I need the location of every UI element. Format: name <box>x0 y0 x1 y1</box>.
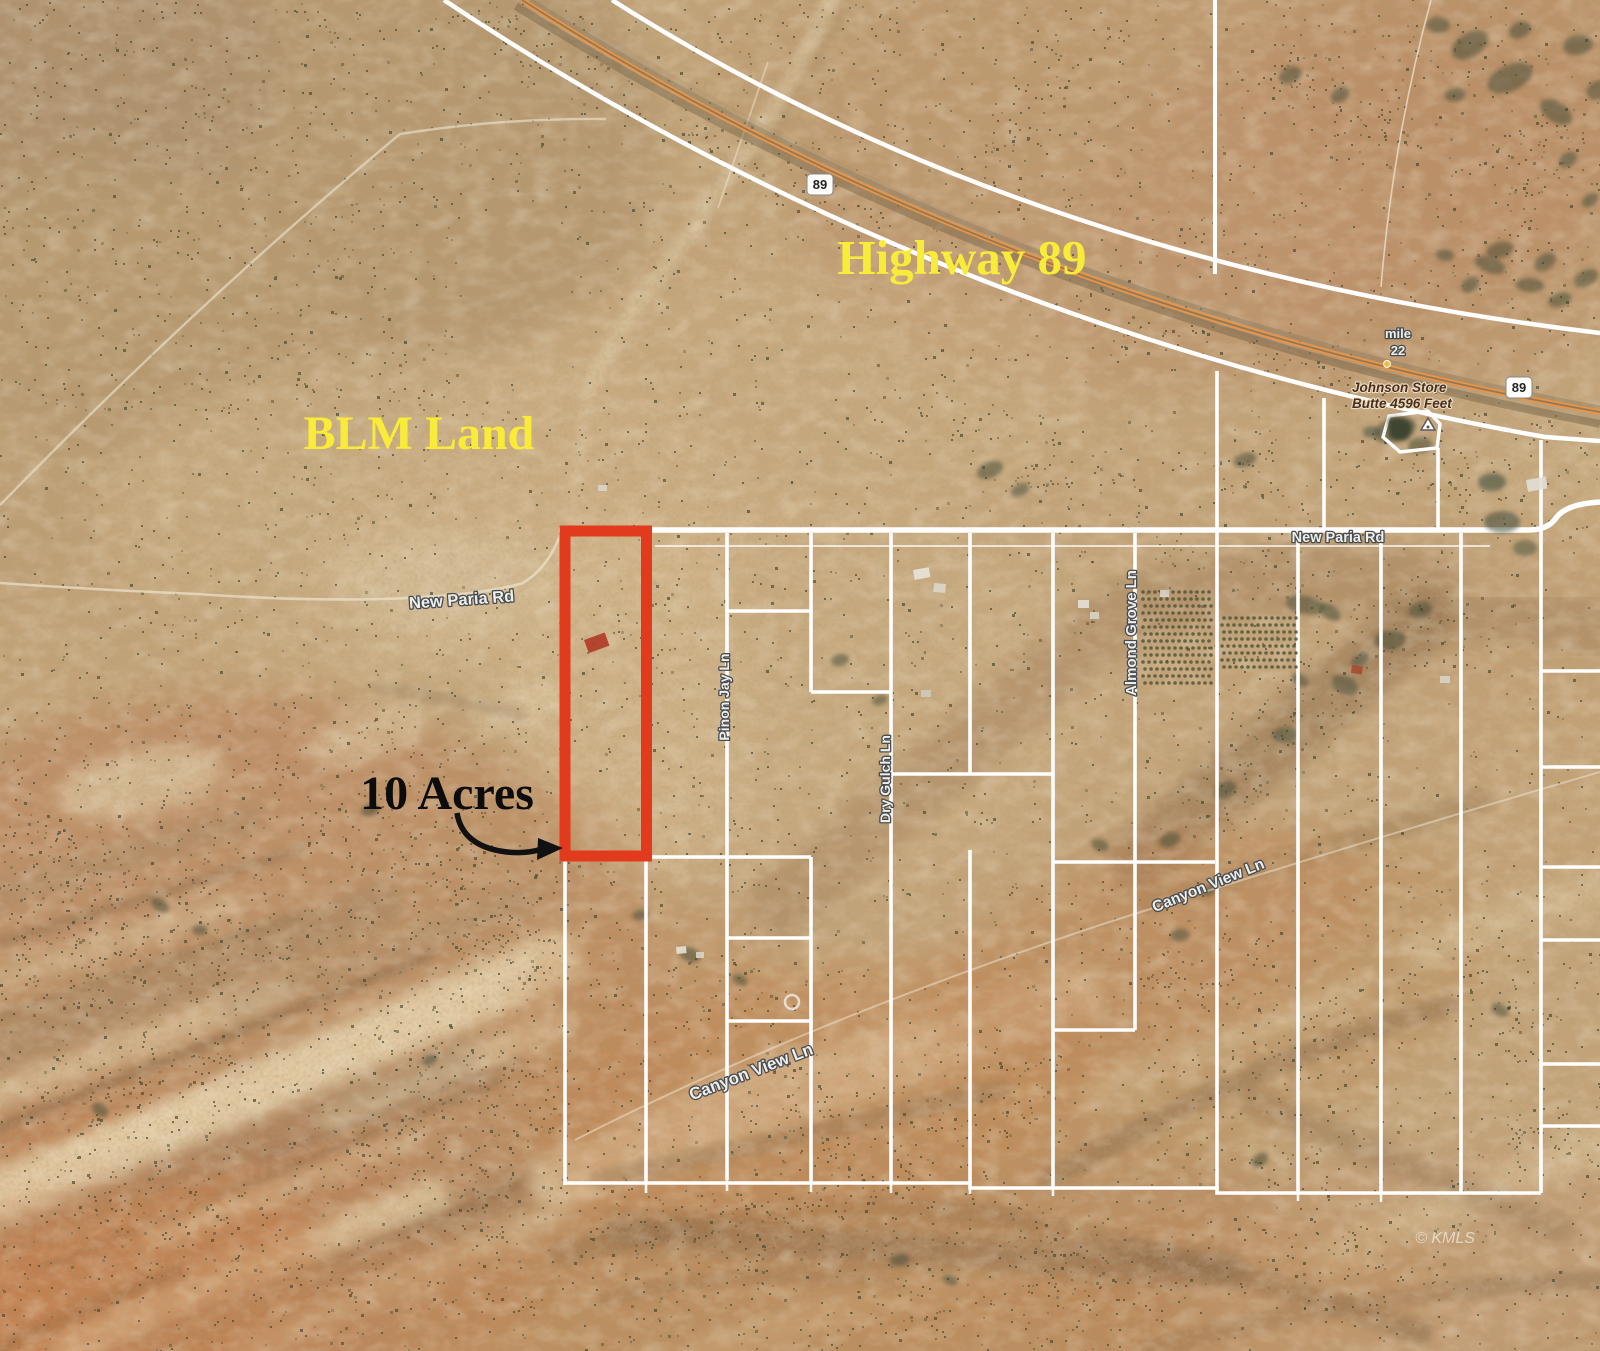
svg-text:mile: mile <box>1385 326 1411 341</box>
svg-text:Butte 4596 Feet: Butte 4596 Feet <box>1352 396 1452 411</box>
svg-text:10 Acres: 10 Acres <box>360 767 534 820</box>
svg-text:Dry Gulch Ln: Dry Gulch Ln <box>877 735 893 823</box>
svg-text:Almond Grove Ln: Almond Grove Ln <box>1123 570 1140 696</box>
svg-text:Highway 89: Highway 89 <box>837 230 1086 285</box>
svg-text:BLM Land: BLM Land <box>304 407 535 460</box>
svg-text:89: 89 <box>813 177 827 192</box>
svg-text:© KMLS: © KMLS <box>1415 1230 1475 1247</box>
svg-text:22: 22 <box>1391 343 1405 358</box>
svg-text:89: 89 <box>1512 380 1526 395</box>
svg-text:New Paria Rd: New Paria Rd <box>1292 530 1385 546</box>
svg-text:Johnson Store: Johnson Store <box>1352 380 1447 395</box>
svg-text:Pinon Jay Ln: Pinon Jay Ln <box>716 653 732 740</box>
